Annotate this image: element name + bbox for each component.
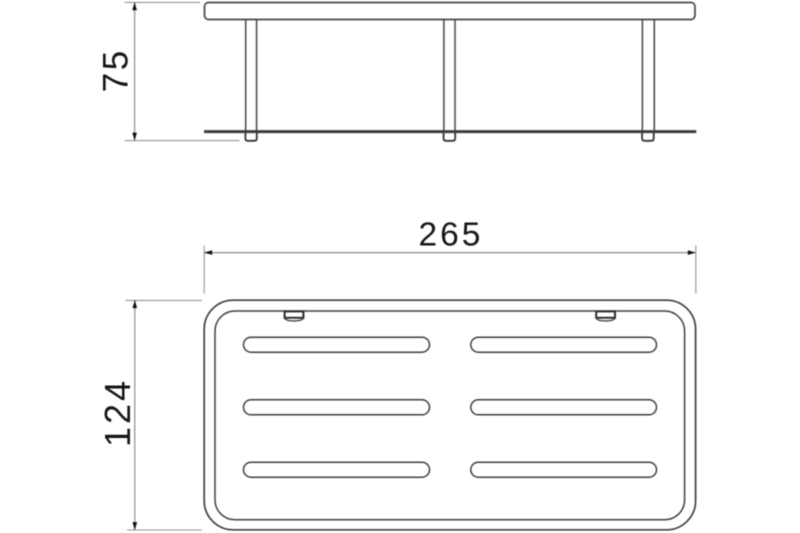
svg-text:75: 75 [97, 48, 136, 92]
svg-text:265: 265 [419, 217, 484, 254]
svg-text:124: 124 [97, 378, 138, 447]
